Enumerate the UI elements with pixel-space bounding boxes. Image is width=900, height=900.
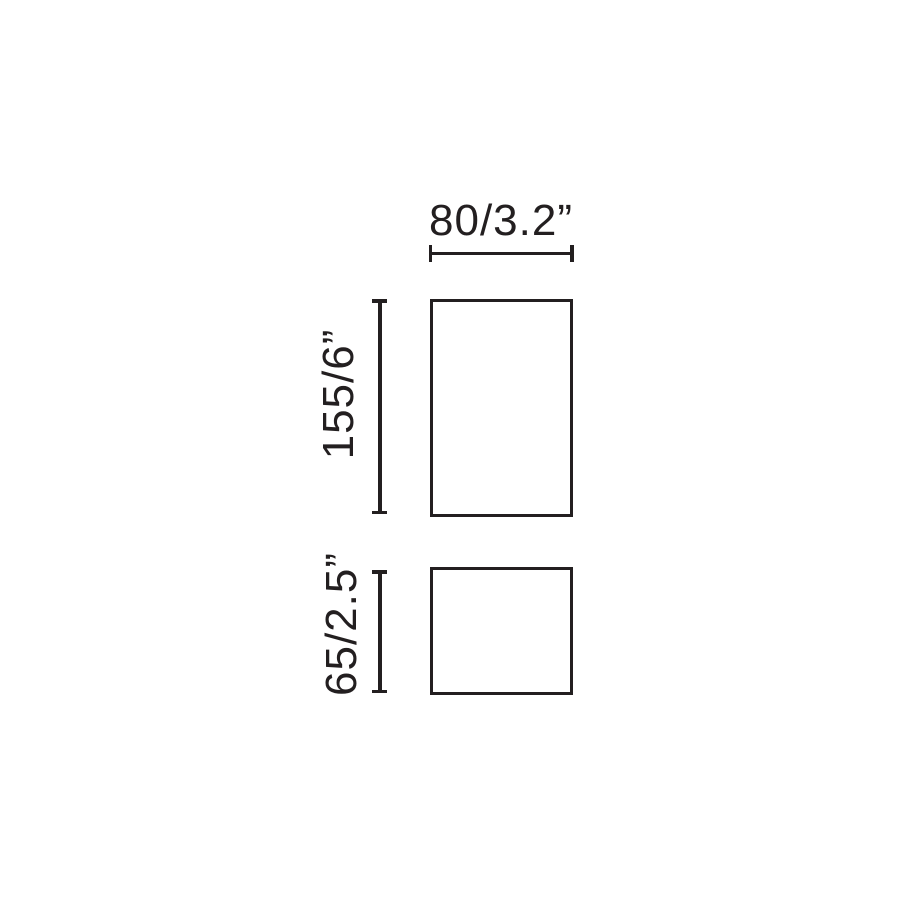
width-dimension-label: 80/3.2” [351,197,651,245]
width-dimension-right-tick [570,245,574,262]
width-dimension-line [430,252,573,256]
height-top-dimension-line [378,299,382,514]
height-top-dimension-bottom-cap [372,511,387,515]
width-dimension-left-tick [429,245,433,262]
height-top-dimension-top-cap [372,299,387,303]
height-bottom-dimension-line [378,570,382,693]
height-bottom-dimension-label: 65/2.5” [318,504,366,744]
height-top-dimension-label: 155/6” [315,274,363,514]
base-outline-rect [430,567,573,695]
body-outline-rect [430,299,573,517]
dimension-diagram-canvas: 80/3.2” 155/6” 65/2.5” [0,0,900,900]
height-bottom-dimension-top-cap [372,570,387,574]
height-bottom-dimension-bottom-cap [372,690,387,694]
